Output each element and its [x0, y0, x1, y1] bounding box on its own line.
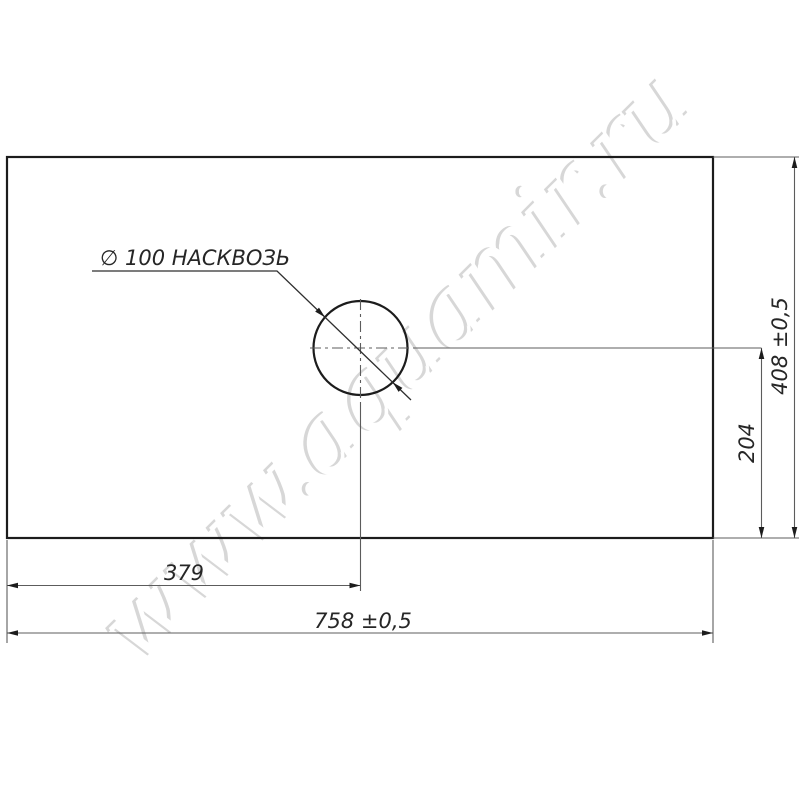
dimension-text-758: 758 ±0,5 — [314, 609, 412, 633]
dim-758-arrow-left — [7, 630, 18, 636]
dim-408-arrow-bottom — [792, 527, 798, 538]
dimension-text-408: 408 ±0,5 — [768, 297, 792, 395]
dim-758-arrow-right — [702, 630, 713, 636]
drawing-svg: www.aquamir.ru www.aquamir.ru 379 758 ±0… — [0, 0, 800, 800]
watermark: www.aquamir.ru www.aquamir.ru — [74, 45, 714, 685]
hole-callout-label: ∅ 100 НАСКВОЗЬ — [100, 246, 290, 270]
dim-204-arrow-bottom — [759, 527, 765, 538]
dim-379-arrow-right — [350, 583, 361, 589]
dim-204-arrow-top — [759, 348, 765, 359]
dimension-text-379: 379 — [164, 561, 204, 585]
watermark-face-text: www.aquamir.ru — [78, 47, 715, 684]
dim-379-arrow-left — [7, 583, 18, 589]
technical-drawing-canvas: www.aquamir.ru www.aquamir.ru 379 758 ±0… — [0, 0, 800, 800]
dim-408-arrow-top — [792, 157, 798, 168]
dimension-text-204: 204 — [735, 423, 759, 463]
